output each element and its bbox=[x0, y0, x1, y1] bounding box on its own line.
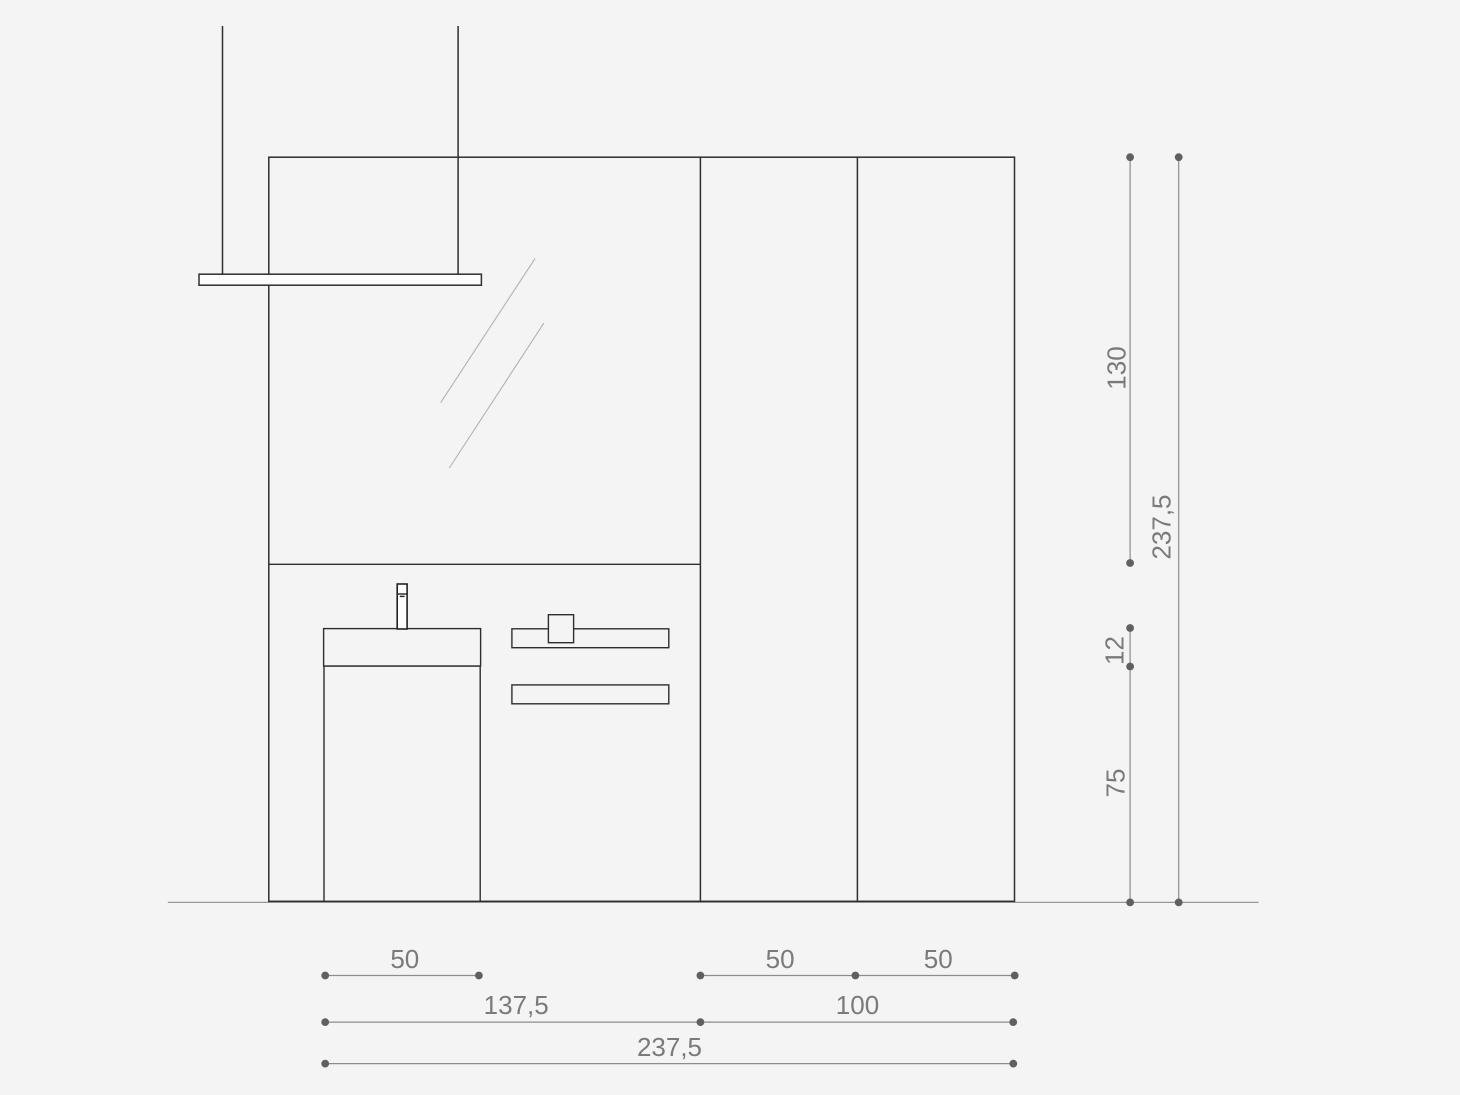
svg-text:50: 50 bbox=[766, 944, 795, 974]
svg-text:12: 12 bbox=[1100, 636, 1130, 665]
svg-text:137,5: 137,5 bbox=[484, 990, 549, 1020]
svg-text:237,5: 237,5 bbox=[637, 1032, 702, 1062]
svg-text:50: 50 bbox=[924, 944, 953, 974]
svg-text:100: 100 bbox=[836, 990, 879, 1020]
svg-text:75: 75 bbox=[1101, 769, 1131, 798]
svg-text:50: 50 bbox=[390, 944, 419, 974]
svg-text:130: 130 bbox=[1102, 346, 1132, 389]
svg-text:237,5: 237,5 bbox=[1147, 494, 1177, 559]
